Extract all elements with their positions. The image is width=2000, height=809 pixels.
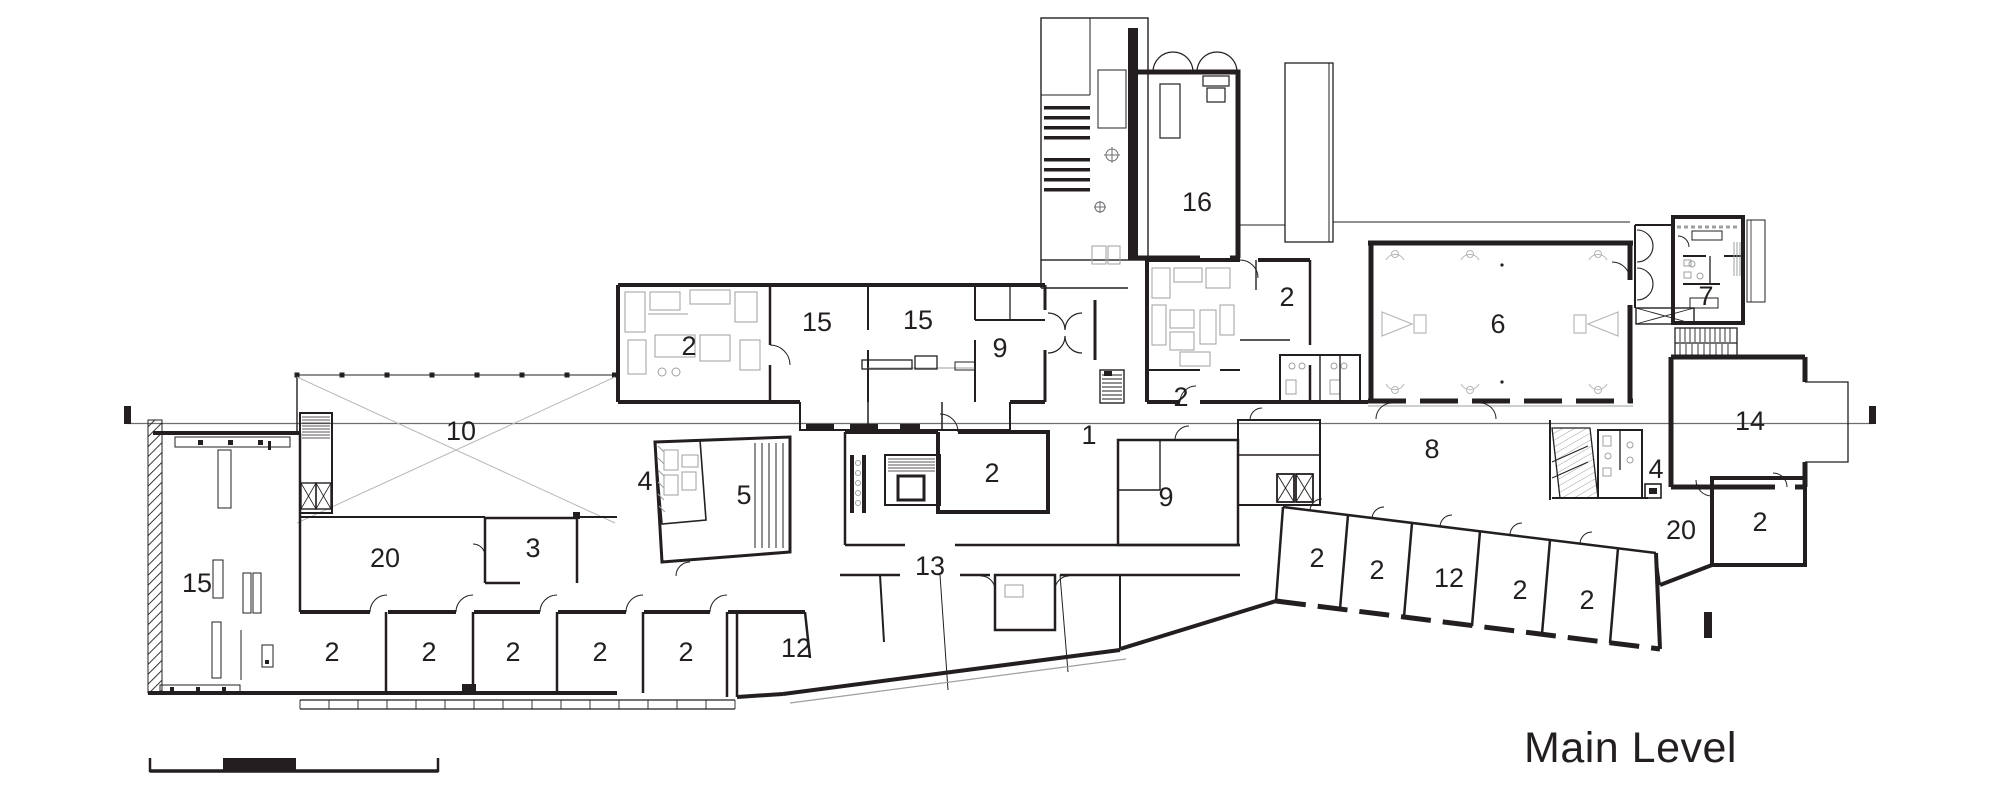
room-label-2-row3: 2 [505,637,520,667]
room-9-lower [1118,426,1238,545]
room-label-10: 10 [446,416,476,446]
exterior-stair-icon [1675,328,1737,358]
shelving [160,437,290,694]
room-label-2-se4: 2 [1579,585,1594,615]
stair-run-icon [1044,106,1090,192]
porch-rail [1747,220,1765,302]
room-label-2-center-south: 2 [984,458,999,488]
room-8-commons [1238,408,1320,505]
door-arc-icon [1678,236,1689,247]
door-arc-icon [473,544,485,556]
restroom-row [850,455,866,513]
room-label-2-se3: 2 [1512,575,1527,605]
room-label-20-west: 20 [370,543,400,573]
restroom-fixtures [1280,355,1360,402]
elevator-icon [1277,474,1313,502]
room-label-9-lower: 9 [1158,482,1173,512]
wc-block [1598,430,1642,498]
door-arc-icon [1480,403,1496,419]
door-arc-icon [370,595,727,612]
door-arc-icon [1310,499,1592,544]
servery-block [1147,260,1368,402]
door-arc-icon [1376,403,1392,419]
room-16-block [1138,52,1238,258]
room-label-4-east: 4 [1648,454,1663,484]
room-label-12-west: 12 [781,633,811,663]
room-labels: 16 2 15 15 9 2 2 6 7 10 1 8 14 4 9 2 4 5… [182,187,1768,667]
room-label-2-row4: 2 [592,637,607,667]
room-label-2-row5: 2 [678,637,693,667]
door-arc-icon [1175,426,1189,440]
scale-bar [150,758,438,771]
room-label-2-se2: 2 [1369,555,1384,585]
room-label-8: 8 [1424,434,1439,464]
room-label-14: 14 [1735,406,1765,436]
room-label-7: 7 [1698,281,1713,311]
room-label-9-upper: 9 [992,333,1007,363]
elevator-icon [301,483,331,509]
door-arc-icon [1250,408,1262,420]
double-door-icon [1637,230,1653,262]
double-door-icon [1197,52,1237,72]
stair-tower [1041,18,1148,288]
room-label-13: 13 [915,551,945,581]
room-label-20-east: 20 [1666,515,1696,545]
floor-plan-page: 16 2 15 15 9 2 2 6 7 10 1 8 14 4 9 2 4 5… [0,0,2000,809]
center-south-block [783,414,1276,703]
central-vestibule [1048,300,1124,403]
room-label-12-east: 12 [1434,563,1464,593]
room-label-15-a: 15 [802,307,832,337]
west-stair-tower [300,413,332,513]
room-label-15-b: 15 [903,305,933,335]
plan-title: Main Level [1524,724,1737,773]
double-door-icon [1153,52,1193,72]
ramp-and-service-east [1550,420,1661,500]
stair-court-icon [885,455,940,505]
room-label-5: 5 [736,480,751,510]
room-label-2-row2: 2 [421,637,436,667]
east-vestibule [1635,225,1694,324]
room-label-6: 6 [1490,309,1505,339]
south-vestibule [981,575,1069,630]
room-label-15-west: 15 [182,568,212,598]
room-label-2-east: 2 [1752,507,1767,537]
column-marker-icon [1094,147,1120,213]
boardwalk [300,700,735,709]
hatched-wall [148,420,162,693]
door-arc-icon [676,562,690,576]
canopy-area-10 [295,373,618,524]
room-label-2-center-north: 2 [1173,382,1188,412]
canopy-rect [1237,63,1630,242]
servery-equipment [1152,268,1234,366]
room-label-2-row1: 2 [324,637,339,667]
rooms-4-5-block [655,437,790,576]
room-label-4-west: 4 [637,466,652,496]
room-7-block [1673,217,1765,358]
room-label-2-kitchen: 2 [681,331,696,361]
room-label-3: 3 [525,533,540,563]
double-door-icon [1637,268,1653,300]
corridor-20-east [1656,478,1805,638]
floor-plan-drawing: 16 2 15 15 9 2 2 6 7 10 1 8 14 4 9 2 4 5… [0,0,2000,809]
room-label-2-servery: 2 [1279,282,1294,312]
stair-icon [1100,370,1124,403]
room-label-1: 1 [1081,420,1096,450]
section-cut-line [124,406,1876,424]
corridor-20-west [300,512,617,583]
southeast-wing [1276,499,1660,649]
room-label-2-se1: 2 [1309,543,1324,573]
room-label-16: 16 [1182,187,1212,217]
door-arc-icon [770,345,790,365]
double-door-icon [1048,336,1082,353]
double-door-icon [1048,313,1082,330]
door-arc-icon [1612,262,1630,280]
